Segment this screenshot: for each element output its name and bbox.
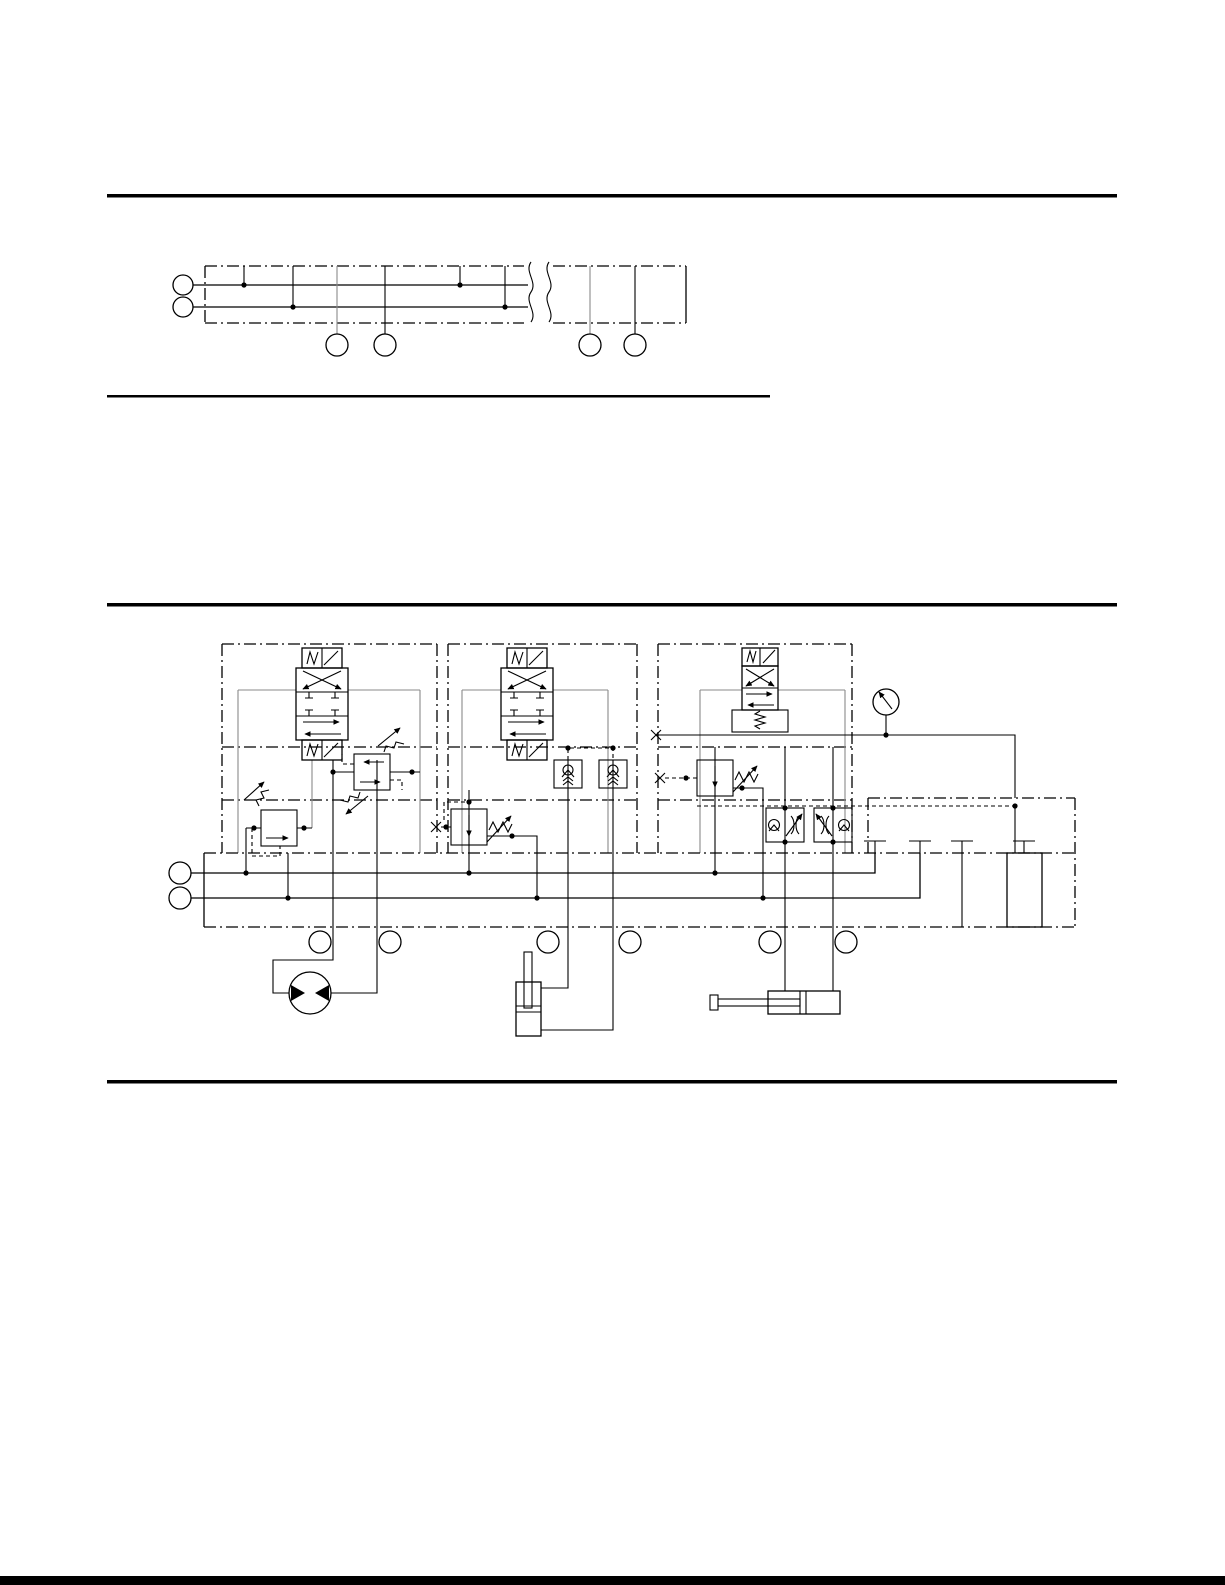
hydraulic-motor — [289, 972, 331, 1014]
cylinder-vertical — [516, 952, 541, 1036]
rule-second — [107, 395, 770, 398]
reducing-valve-station-3 — [655, 747, 1018, 898]
junction-dot — [243, 870, 248, 875]
port-label-circle — [759, 931, 781, 953]
break-lines — [529, 262, 551, 322]
station-1-outline — [222, 644, 437, 853]
section-rules — [107, 194, 1117, 1084]
junction-dot — [565, 745, 570, 750]
station-3-work-lines — [785, 747, 833, 991]
directional-valve-4-3 — [296, 648, 348, 760]
junction-dot — [409, 769, 414, 774]
rule-top — [107, 194, 1117, 198]
rule-third — [107, 603, 1117, 607]
port-label-circle — [619, 931, 641, 953]
p-rail — [191, 853, 875, 876]
plugged-pilot-x — [431, 822, 441, 832]
port-label-circle — [326, 334, 348, 356]
cylinder-horizontal — [710, 991, 840, 1014]
station-2-passages — [462, 690, 608, 853]
junction-dot — [241, 282, 246, 287]
supply-port-circle — [169, 887, 191, 909]
junction-dot — [712, 870, 717, 875]
blanking-plug — [864, 841, 886, 853]
main-figure — [169, 644, 1075, 1036]
junction-dot — [466, 870, 471, 875]
port-label-circle — [835, 931, 857, 953]
manifold-outline-left — [205, 266, 524, 323]
junction-dot — [285, 895, 290, 900]
page-edge-bar — [0, 1576, 1225, 1585]
station-3-outline — [658, 644, 852, 853]
supply-port-circle — [173, 275, 193, 295]
junction-dot — [301, 825, 306, 830]
port-label-circle — [579, 334, 601, 356]
port-label-circle — [379, 931, 401, 953]
junction-dot — [534, 895, 539, 900]
t-rail — [191, 853, 920, 901]
document-page — [0, 0, 1225, 1585]
blanking-plug — [1013, 841, 1035, 853]
junction-dot — [290, 304, 295, 309]
junction-dot — [610, 745, 615, 750]
rule-fourth — [107, 1080, 1117, 1084]
station-1-work-lines — [273, 760, 377, 993]
port-lines — [326, 266, 396, 356]
port-label-circle — [624, 334, 646, 356]
plugged-pilot-x — [655, 773, 665, 783]
pilot-check-valves — [554, 745, 627, 788]
end-cover — [1007, 853, 1042, 927]
junction-dot — [466, 799, 471, 804]
blanking-plug — [909, 841, 931, 853]
directional-valve-4-3 — [501, 648, 553, 760]
work-port-circles — [309, 931, 857, 953]
junction-dot — [683, 775, 688, 780]
junction-dot — [739, 785, 744, 790]
port-label-circle — [537, 931, 559, 953]
supply-port-circle — [173, 297, 193, 317]
page-figure — [0, 0, 1225, 1585]
port-label-circle — [309, 931, 331, 953]
junction-dot — [502, 304, 507, 309]
return-spring — [732, 710, 788, 732]
supply-port-circle — [169, 862, 191, 884]
pressure-gauge — [873, 689, 899, 735]
blank-station-extension — [864, 798, 1075, 927]
junction-dot — [457, 282, 462, 287]
blanking-plug — [951, 841, 973, 853]
junction-dot — [443, 824, 448, 829]
reducing-valve-station-1 — [244, 782, 312, 873]
reducing-valve-station-2 — [431, 790, 537, 898]
junction-dot — [760, 895, 765, 900]
manifold-outline-right — [553, 266, 686, 356]
port-label-circle — [374, 334, 396, 356]
rail-stubs — [241, 266, 507, 310]
pressure-rails — [193, 285, 528, 307]
top-figure — [173, 262, 686, 356]
crossover-relief-valve — [330, 728, 420, 814]
junction-dot — [509, 833, 514, 838]
manifold-base — [169, 798, 1075, 953]
